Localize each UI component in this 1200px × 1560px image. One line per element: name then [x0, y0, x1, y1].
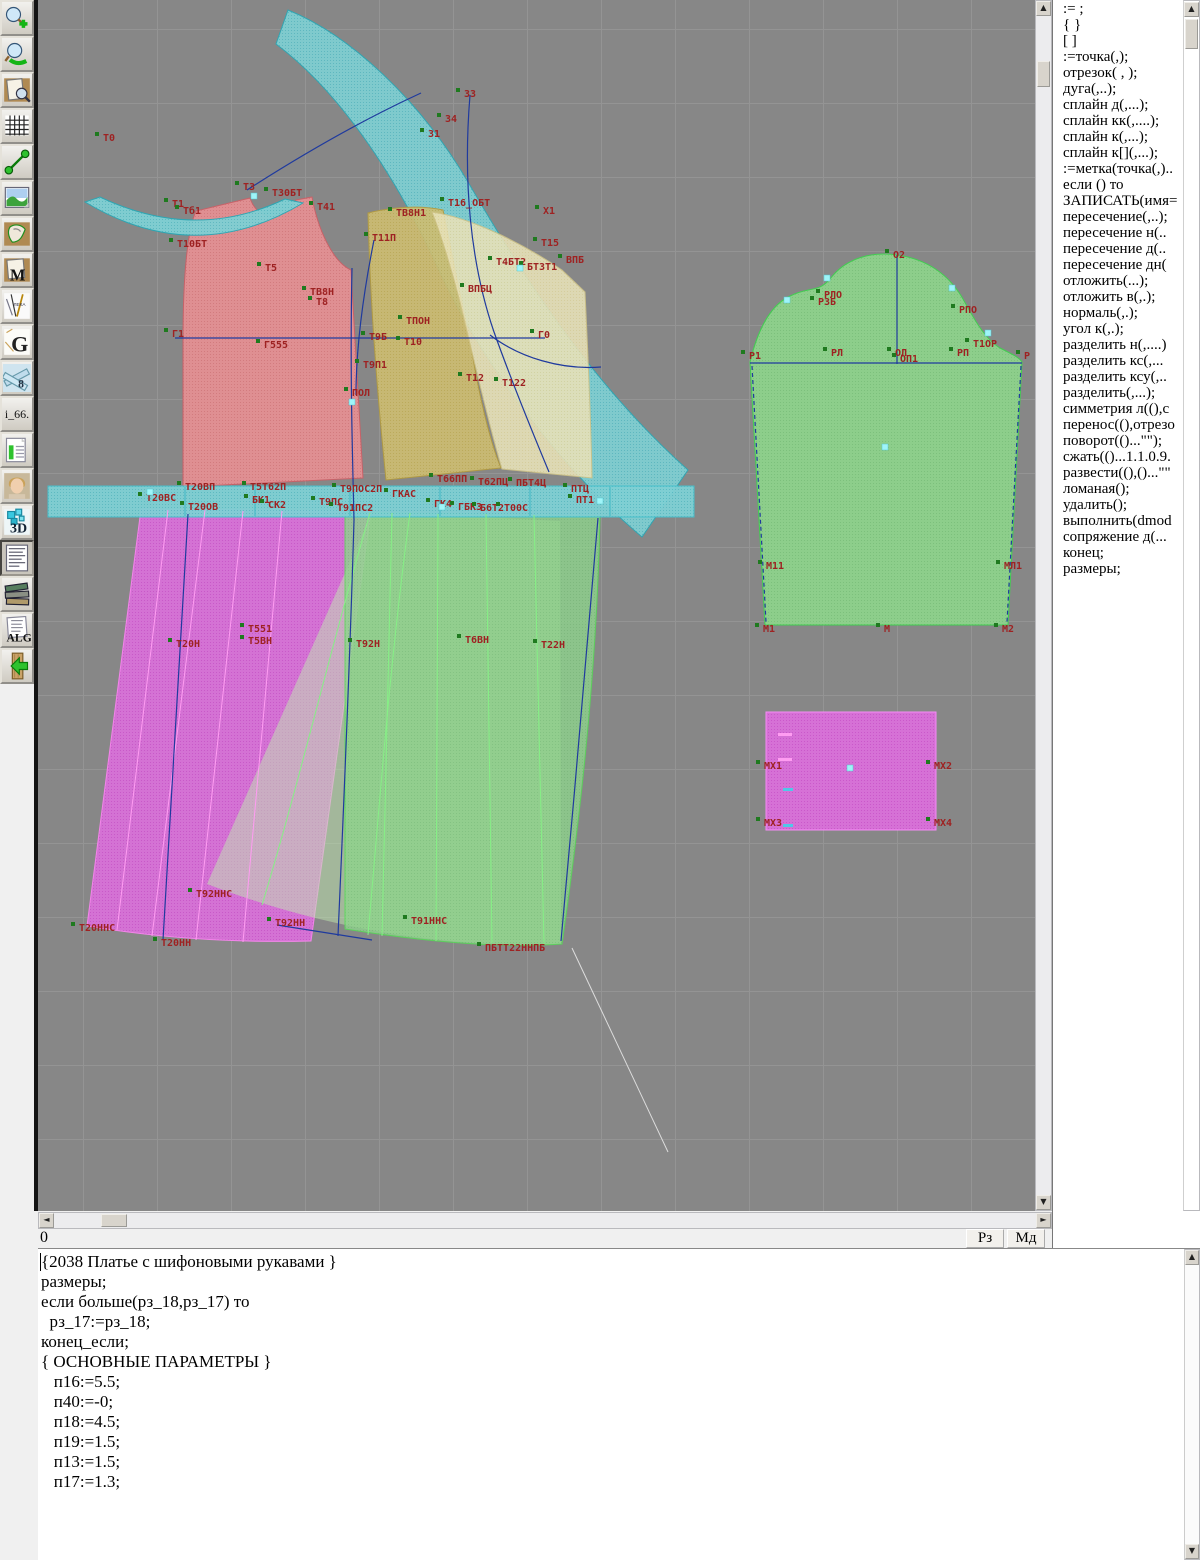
point-marker — [949, 347, 953, 351]
point-marker — [450, 501, 454, 505]
selection-handle[interactable] — [847, 765, 853, 771]
point-label: Т122 — [502, 378, 526, 389]
point-label: Т10БТ — [177, 239, 207, 250]
command-item[interactable]: разделить кс(,... — [1053, 353, 1182, 369]
md-button[interactable]: Мд — [1007, 1229, 1045, 1248]
point-marker — [508, 477, 512, 481]
point-marker — [885, 249, 889, 253]
i66-button[interactable]: i_66. — [0, 396, 34, 432]
point-marker — [426, 498, 430, 502]
svg-text:3D: 3D — [10, 522, 27, 537]
point-marker — [398, 315, 402, 319]
vertical-scroll-thumb[interactable] — [1037, 61, 1050, 87]
point-label: Г555 — [264, 340, 288, 351]
point-marker — [355, 359, 359, 363]
point-marker — [741, 350, 745, 354]
point-label: ПБТ4Ц — [516, 478, 546, 489]
command-item[interactable]: :=метка(точка(,).. — [1053, 161, 1182, 177]
point-label: 34 — [445, 114, 457, 125]
point-marker — [965, 338, 969, 342]
portrait-button[interactable] — [0, 468, 34, 504]
point-label: ВПБЦ — [468, 284, 492, 295]
point-label: М1 — [763, 624, 775, 635]
point-marker — [240, 635, 244, 639]
command-item[interactable]: :=точка(,); — [1053, 49, 1182, 65]
point-label: МХ4 — [934, 818, 952, 829]
point-marker — [488, 256, 492, 260]
command-item[interactable]: сплайн д(,...); — [1053, 97, 1182, 113]
command-item[interactable]: сопряжение д(... — [1053, 529, 1182, 545]
editor-scrollbar[interactable]: ▲ ▼ — [1184, 1249, 1200, 1560]
point-marker — [951, 304, 955, 308]
point-marker — [332, 483, 336, 487]
pattern-cad-window: M ЛЕКА G 8 i_66. 3D ALG — [0, 0, 1200, 1560]
selection-handle[interactable] — [949, 285, 955, 291]
point-label: Р — [1024, 351, 1030, 362]
zoom-out-button[interactable] — [0, 36, 34, 72]
point-label: Т00С — [504, 503, 528, 514]
stray-line — [572, 948, 668, 1152]
code-editor[interactable]: {2038 Платье с шифоновыми рукавами }разм… — [38, 1248, 1200, 1560]
point-marker — [188, 888, 192, 892]
selection-handle[interactable] — [985, 330, 991, 336]
point-marker — [164, 328, 168, 332]
point-label: Т8 — [316, 297, 328, 308]
pattern-m-button[interactable]: M — [0, 252, 34, 288]
point-label: СК2 — [268, 500, 286, 511]
point-label: Т1ОР — [973, 339, 997, 350]
point-label: Г1 — [172, 329, 184, 340]
point-marker — [494, 377, 498, 381]
svg-text:M: M — [10, 266, 25, 285]
point-label: Т20ОВ — [188, 502, 218, 513]
point-label: Б6Т2 — [480, 503, 504, 514]
point-label: ГКАС — [392, 489, 416, 500]
code-line: {2038 Платье с шифоновыми рукавами } — [41, 1252, 1180, 1272]
point-label: МХ1 — [764, 761, 782, 772]
point-label: Т66ПП — [437, 474, 467, 485]
point-label: ВПБ — [566, 255, 584, 266]
canvas-horizontal-scrollbar[interactable]: ◄ ► — [38, 1212, 1052, 1229]
point-marker — [1016, 350, 1020, 354]
command-item[interactable]: сплайн к[](,...); — [1053, 145, 1182, 161]
toolbar: M ЛЕКА G 8 i_66. 3D ALG — [0, 0, 34, 1560]
point-label: ТПОН — [406, 316, 430, 327]
code-line: п19:=1.5; — [41, 1432, 1180, 1452]
point-marker — [257, 262, 261, 266]
command-item[interactable]: пересечение дн( — [1053, 257, 1182, 273]
canvas-vertical-scrollbar[interactable]: ▲ ▼ — [1035, 0, 1052, 1211]
code-line: п13:=1.5; — [41, 1452, 1180, 1472]
point-label: М11 — [766, 561, 784, 572]
point-marker — [242, 481, 246, 485]
command-item[interactable]: := ; — [1053, 1, 1182, 17]
code-line: п16:=5.5; — [41, 1372, 1180, 1392]
point-marker — [994, 623, 998, 627]
point-marker — [175, 205, 179, 209]
command-panel-scrollbar[interactable]: ▲ — [1183, 0, 1200, 1211]
point-marker — [563, 483, 567, 487]
point-label: О2 — [893, 250, 905, 261]
command-item[interactable]: сплайн кк(,....); — [1053, 113, 1182, 129]
command-item[interactable]: { } — [1053, 17, 1182, 33]
cursor-coordinates: 0 — [40, 1229, 48, 1247]
point-label: РЗБ — [818, 297, 836, 308]
command-item[interactable]: сплайн к(,...); — [1053, 129, 1182, 145]
pattern-drawing: Т0Т3Т30БТТ41Т1Тб1Т10БТТ5Т11П333431Х1Т15Т… — [38, 0, 1035, 1211]
scroll-up-arrow[interactable]: ▲ — [1185, 1250, 1199, 1265]
point-label: Т20Н — [176, 639, 200, 650]
command-item[interactable]: отложить в(,.); — [1053, 289, 1182, 305]
code-line: размеры; — [41, 1272, 1180, 1292]
vertical-scroll-thumb[interactable] — [1185, 19, 1198, 49]
point-marker — [138, 492, 142, 496]
drafting-tools-button[interactable]: ЛЕКА — [0, 288, 34, 324]
point-marker — [810, 296, 814, 300]
point-marker — [926, 817, 930, 821]
command-item[interactable]: сжать(()...1.1.0.9. — [1053, 449, 1182, 465]
command-item[interactable]: нормаль(,.); — [1053, 305, 1182, 321]
scroll-left-arrow[interactable]: ◄ — [39, 1213, 54, 1228]
point-marker — [535, 205, 539, 209]
command-item[interactable]: перенос((),отрезо — [1053, 417, 1182, 433]
selection-handle[interactable] — [784, 297, 790, 303]
selection-handle[interactable] — [147, 489, 153, 495]
point-label: МХ2 — [934, 761, 952, 772]
point-marker — [420, 128, 424, 132]
code-line: п17:=1.3; — [41, 1472, 1180, 1492]
command-item[interactable]: пересечение д(.. — [1053, 241, 1182, 257]
point-marker — [816, 289, 820, 293]
point-marker — [267, 917, 271, 921]
point-label: М2 — [1002, 624, 1014, 635]
code-line: рз_17:=рз_18; — [41, 1312, 1180, 1332]
point-marker — [95, 132, 99, 136]
point-marker — [876, 623, 880, 627]
point-label: Т3 — [243, 182, 255, 193]
code-line: { ОСНОВНЫЕ ПАРАМЕТРЫ } — [41, 1352, 1180, 1372]
point-marker — [309, 201, 313, 205]
point-marker — [887, 347, 891, 351]
point-label: ТВ8Н1 — [396, 208, 426, 219]
point-marker — [755, 623, 759, 627]
point-marker — [168, 638, 172, 642]
point-marker — [240, 623, 244, 627]
point-marker — [361, 331, 365, 335]
code-line: п40:=-0; — [41, 1392, 1180, 1412]
point-label: Т62ПЦ — [478, 477, 508, 488]
code-line: п18:=4.5; — [41, 1412, 1180, 1432]
command-panel: := ;{ }[ ]:=точка(,);отрезок( , );дуга(,… — [1052, 0, 1200, 1248]
point-marker — [437, 113, 441, 117]
point-label: ПБТТ22ННПБ — [485, 943, 545, 954]
point-marker — [311, 496, 315, 500]
point-marker — [758, 560, 762, 564]
command-item[interactable]: дуга(,..); — [1053, 81, 1182, 97]
point-marker — [440, 197, 444, 201]
piece-sleeve[interactable] — [750, 254, 1022, 625]
command-item[interactable]: выполнить(dmod — [1053, 513, 1182, 529]
command-item[interactable]: развести((),()..."" — [1053, 465, 1182, 481]
point-label: Т20НН — [161, 938, 191, 949]
chart-table-button[interactable] — [0, 432, 34, 468]
point-marker — [472, 502, 476, 506]
point-label: Т0 — [103, 133, 115, 144]
point-label: Т92Н — [356, 639, 380, 650]
alg-button[interactable]: ALG — [0, 612, 34, 648]
point-label: Т11П — [372, 233, 396, 244]
point-marker — [388, 207, 392, 211]
point-label: ГБК3 — [458, 502, 482, 513]
point-marker — [530, 329, 534, 333]
point-marker — [519, 261, 523, 265]
i66-label: i_66. — [3, 407, 31, 422]
point-marker — [477, 942, 481, 946]
point-label: Т9ПОС2П — [340, 484, 382, 495]
command-item[interactable]: пересечение(,..); — [1053, 209, 1182, 225]
point-label: Р1 — [749, 351, 761, 362]
point-label: ПТЦ — [571, 484, 589, 495]
point-marker — [458, 372, 462, 376]
svg-text:G: G — [11, 331, 28, 356]
scroll-right-arrow[interactable]: ► — [1036, 1213, 1051, 1228]
view-3d-button[interactable]: 3D — [0, 504, 34, 540]
point-label: 31 — [428, 129, 440, 140]
point-marker — [496, 502, 500, 506]
point-label: ПОЛ — [352, 388, 370, 399]
point-label: Т41 — [317, 202, 335, 213]
books-button[interactable] — [0, 576, 34, 612]
point-marker — [457, 634, 461, 638]
command-item[interactable]: разделить н(,....) — [1053, 337, 1182, 353]
point-marker — [533, 639, 537, 643]
point-label: Т91ПС2 — [337, 503, 373, 514]
point-marker — [235, 181, 239, 185]
point-marker — [823, 347, 827, 351]
point-marker — [403, 915, 407, 919]
command-item[interactable]: поворот(()...""); — [1053, 433, 1182, 449]
code-line: если больше(рз_18,рз_17) то — [41, 1292, 1180, 1312]
point-marker — [460, 283, 464, 287]
command-item[interactable]: если () то — [1053, 177, 1182, 193]
command-item[interactable]: отложить(...); — [1053, 273, 1182, 289]
point-marker — [169, 238, 173, 242]
command-item[interactable]: пересечение н(.. — [1053, 225, 1182, 241]
pattern-piece-button[interactable] — [0, 216, 34, 252]
point-label: 33 — [464, 89, 476, 100]
point-marker — [308, 296, 312, 300]
command-item[interactable]: отрезок( , ); — [1053, 65, 1182, 81]
point-marker — [153, 937, 157, 941]
selection-handle[interactable] — [517, 265, 523, 271]
point-marker — [429, 473, 433, 477]
point-label: Т20ННС — [79, 923, 115, 934]
point-label: Т5Т62П — [250, 482, 286, 493]
point-label: Т92НН — [275, 918, 305, 929]
selection-handle[interactable] — [882, 444, 888, 450]
image-view-button[interactable] — [0, 180, 34, 216]
point-marker — [260, 499, 264, 503]
command-item[interactable]: разделить(,...); — [1053, 385, 1182, 401]
point-label: Тб1 — [183, 205, 201, 217]
point-label: РЛ — [831, 348, 843, 359]
point-label: Х1 — [543, 206, 555, 217]
point-marker — [177, 481, 181, 485]
selection-handle[interactable] — [251, 193, 257, 199]
command-item[interactable]: ломаная(); — [1053, 481, 1182, 497]
command-item[interactable]: разделить ксу(,.. — [1053, 369, 1182, 385]
svg-text:8: 8 — [18, 377, 24, 390]
point-marker — [996, 560, 1000, 564]
point-label: Т5ВН — [248, 636, 272, 647]
scroll-up-arrow[interactable]: ▲ — [1036, 1, 1051, 16]
point-label: Т6ВН — [465, 635, 489, 646]
selection-handle[interactable] — [439, 504, 445, 510]
point-marker — [456, 88, 460, 92]
rulers-button[interactable]: 8 — [0, 360, 34, 396]
point-label: БТ3Т1 — [527, 262, 557, 273]
selection-handle[interactable] — [597, 498, 603, 504]
point-label: Т30БТ — [272, 188, 302, 199]
text-document-button[interactable] — [0, 540, 34, 576]
exit-button[interactable] — [0, 648, 34, 684]
point-marker — [71, 922, 75, 926]
grid-button[interactable] — [0, 108, 34, 144]
point-label: МХ3 — [764, 818, 782, 829]
command-item[interactable]: конец; — [1053, 545, 1182, 561]
command-item[interactable]: размеры; — [1053, 561, 1182, 577]
command-item[interactable]: ЗАПИСАТЬ(имя= — [1053, 193, 1182, 209]
point-marker — [348, 638, 352, 642]
status-bar: 0 Рз Мд — [38, 1229, 1052, 1248]
command-item[interactable]: [ ] — [1053, 33, 1182, 49]
point-label: Т9П1 — [363, 360, 387, 371]
command-item[interactable]: симметрия л((),с — [1053, 401, 1182, 417]
point-label: РП — [957, 348, 969, 359]
point-label: Т551 — [248, 624, 272, 635]
point-label: МЛ1 — [1004, 561, 1022, 572]
point-marker — [244, 494, 248, 498]
point-marker — [396, 336, 400, 340]
point-marker — [558, 254, 562, 258]
scroll-up-arrow[interactable]: ▲ — [1184, 2, 1199, 17]
point-marker — [164, 198, 168, 202]
point-label: РПО — [959, 305, 977, 316]
point-marker — [892, 353, 896, 357]
command-item[interactable]: удалить(); — [1053, 497, 1182, 513]
svg-text:ЛЕКА: ЛЕКА — [14, 302, 27, 307]
letter-g-button[interactable]: G — [0, 324, 34, 360]
point-label: Т92ННС — [196, 889, 232, 900]
point-marker — [533, 237, 537, 241]
point-label: Т5 — [265, 263, 277, 274]
point-marker — [256, 339, 260, 343]
command-list: := ;{ }[ ]:=точка(,);отрезок( , );дуга(,… — [1053, 1, 1182, 577]
selection-handle[interactable] — [349, 399, 355, 405]
point-marker — [756, 760, 760, 764]
point-label: Т20ВП — [185, 482, 215, 493]
point-label: Т15 — [541, 238, 559, 249]
code-line: конец_если; — [41, 1332, 1180, 1352]
point-label: М — [884, 624, 890, 635]
horizontal-scroll-thumb[interactable] — [101, 1214, 127, 1227]
point-label: Т16_ОБТ — [448, 198, 490, 209]
point-marker — [384, 488, 388, 492]
point-marker — [756, 817, 760, 821]
point-label: Т9Б — [369, 332, 387, 343]
point-marker — [364, 232, 368, 236]
point-label: ПТ1 — [576, 495, 594, 506]
zoom-in-button[interactable] — [0, 0, 34, 36]
point-marker — [344, 387, 348, 391]
code-text: {2038 Платье с шифоновыми рукавами }разм… — [41, 1252, 1180, 1560]
point-marker — [470, 476, 474, 480]
point-marker — [264, 187, 268, 191]
selection-handle[interactable] — [824, 275, 830, 281]
point-marker — [329, 502, 333, 506]
point-label: Т10 — [404, 337, 422, 348]
rz-button[interactable]: Рз — [966, 1229, 1004, 1248]
point-label: ОП1 — [900, 354, 918, 365]
point-label: Т22Н — [541, 640, 565, 651]
point-marker — [568, 494, 572, 498]
scroll-down-arrow[interactable]: ▼ — [1185, 1544, 1199, 1559]
command-item[interactable]: угол к(,.); — [1053, 321, 1182, 337]
print-preview-button[interactable] — [0, 72, 34, 108]
measure-button[interactable] — [0, 144, 34, 180]
point-label: Г0 — [538, 330, 550, 341]
drawing-canvas[interactable]: Т0Т3Т30БТТ41Т1Тб1Т10БТТ5Т11П333431Х1Т15Т… — [38, 0, 1035, 1211]
point-label: Т12 — [466, 373, 484, 384]
point-marker — [926, 760, 930, 764]
point-marker — [302, 286, 306, 290]
scroll-down-arrow[interactable]: ▼ — [1036, 1195, 1051, 1210]
svg-text:ALG: ALG — [7, 632, 32, 644]
point-label: Т91ННС — [411, 916, 447, 927]
point-marker — [180, 501, 184, 505]
